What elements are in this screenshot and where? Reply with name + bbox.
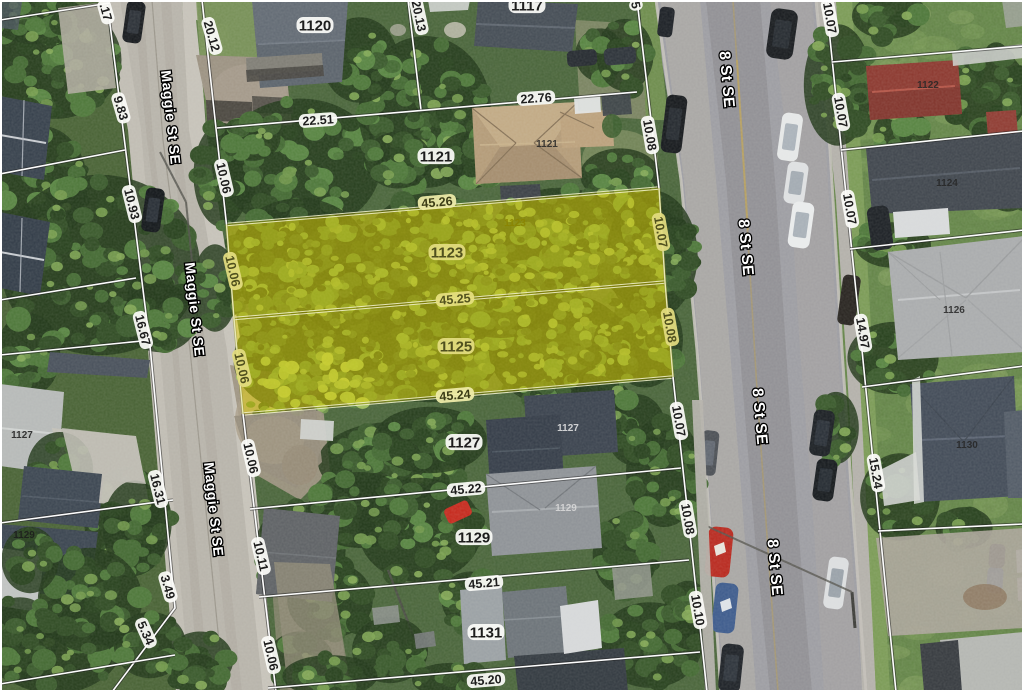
svg-text:45.25: 45.25: [439, 291, 471, 308]
svg-text:1129: 1129: [555, 503, 577, 514]
svg-text:1120: 1120: [299, 17, 332, 34]
svg-text:1125: 1125: [440, 338, 473, 355]
svg-text:1127: 1127: [448, 434, 481, 451]
svg-text:45.21: 45.21: [468, 575, 500, 592]
svg-text:1126: 1126: [943, 305, 965, 316]
svg-text:1127: 1127: [557, 423, 579, 434]
svg-text:45.26: 45.26: [421, 194, 453, 211]
svg-text:1122: 1122: [917, 80, 939, 91]
svg-text:1121: 1121: [420, 148, 453, 165]
svg-text:1123: 1123: [431, 244, 464, 261]
svg-text:1117: 1117: [511, 0, 543, 14]
svg-text:1121: 1121: [536, 139, 558, 150]
svg-text:1123: 1123: [504, 218, 526, 229]
svg-text:1130: 1130: [956, 440, 978, 451]
svg-text:45.20: 45.20: [470, 672, 502, 689]
svg-text:45.22: 45.22: [450, 481, 482, 498]
svg-text:1129: 1129: [458, 529, 491, 546]
svg-text:22.76: 22.76: [520, 90, 552, 106]
svg-text:22.51: 22.51: [302, 112, 334, 128]
svg-text:45.24: 45.24: [439, 387, 471, 404]
svg-text:1131: 1131: [470, 624, 503, 641]
svg-text:1127: 1127: [11, 430, 33, 441]
svg-text:1129: 1129: [13, 530, 35, 541]
svg-text:1124: 1124: [936, 178, 958, 189]
